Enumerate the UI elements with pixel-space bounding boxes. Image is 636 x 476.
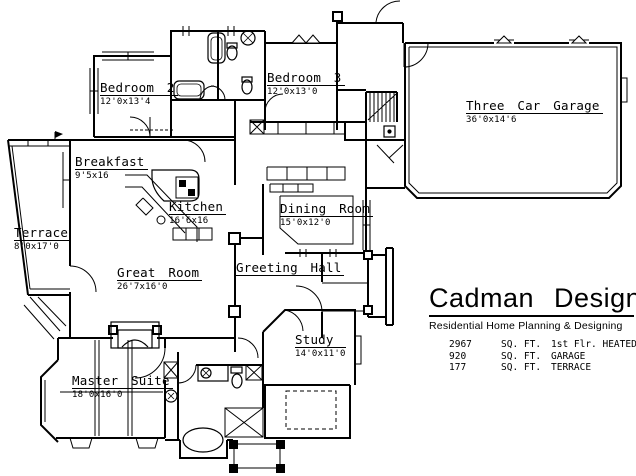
room-dims: 12'0x13'0 xyxy=(267,88,345,97)
room-name: Study xyxy=(295,333,346,348)
area-row: 177 SQ. FT. TERRACE xyxy=(449,362,634,374)
room-label-kitchen: Kitchen 16'6x16 xyxy=(169,200,226,227)
room-dims: 9'5x16 xyxy=(75,172,148,181)
room-label-terrace: Terrace 8'0x17'0 xyxy=(14,226,71,253)
brand-block: Cadman Designs Residential Home Planning… xyxy=(429,283,634,374)
room-label-bedroom-2: Bedroom 2 12'0x13'4 xyxy=(100,81,178,108)
area-label: GARAGE xyxy=(551,351,634,363)
fireplace xyxy=(111,322,159,348)
porch-posts xyxy=(55,131,285,473)
room-label-great-room: Great Room 26'7x16'0 xyxy=(117,266,202,293)
room-label-bedroom-3: Bedroom 3 12'0x13'0 xyxy=(267,71,345,98)
kitchen-island xyxy=(152,170,199,201)
room-dims: 26'7x16'0 xyxy=(117,283,202,292)
area-unit: SQ. FT. xyxy=(501,351,551,363)
room-label-study: Study 14'0x11'0 xyxy=(295,333,346,360)
area-label: 1st Flr. HEATED xyxy=(551,339,636,351)
area-value: 920 xyxy=(449,351,501,363)
room-dims: 36'0x14'6 xyxy=(466,116,603,125)
room-dims: 12'0x13'4 xyxy=(100,98,178,107)
area-value: 177 xyxy=(449,362,501,374)
rear-porch-outline xyxy=(234,444,280,468)
room-dims: 14'0x11'0 xyxy=(295,350,346,359)
room-name: Kitchen xyxy=(169,200,226,215)
room-name: Great Room xyxy=(117,266,202,281)
area-value: 2967 xyxy=(449,339,501,351)
room-label-dining-room: Dining Room 15'0x12'0 xyxy=(280,202,373,229)
door-swings xyxy=(70,1,428,383)
room-name: Dining Room xyxy=(280,202,373,217)
room-dims: 16'6x16 xyxy=(169,217,226,226)
room-dims: 15'0x12'0 xyxy=(280,219,373,228)
room-name: Terrace xyxy=(14,226,71,241)
room-label-greeting-hall: Greeting Hall xyxy=(236,261,344,278)
room-label-master-suite: Master Suite 18'0x16'0 xyxy=(72,374,173,401)
area-row: 920 SQ. FT. GARAGE xyxy=(449,351,634,363)
area-unit: SQ. FT. xyxy=(501,339,551,351)
room-name: Greeting Hall xyxy=(236,261,344,276)
room-name: Three Car Garage xyxy=(466,99,603,114)
room-name: Breakfast xyxy=(75,155,148,170)
area-row: 2967 SQ. FT. 1st Flr. HEATED xyxy=(449,339,634,351)
room-name: Master Suite xyxy=(72,374,173,389)
room-name: Bedroom 2 xyxy=(100,81,178,96)
room-dims: 8'0x17'0 xyxy=(14,243,71,252)
brand-name: Cadman Designs xyxy=(429,283,634,317)
plan-canvas: Bedroom 2 12'0x13'4 Bedroom 3 12'0x13'0 … xyxy=(0,0,636,476)
room-label-breakfast: Breakfast 9'5x16 xyxy=(75,155,148,182)
area-label: TERRACE xyxy=(551,362,634,374)
room-name: Bedroom 3 xyxy=(267,71,345,86)
room-dims: 18'0x16'0 xyxy=(72,391,173,400)
area-unit: SQ. FT. xyxy=(501,362,551,374)
brand-tagline: Residential Home Planning & Designing xyxy=(429,320,634,332)
area-table: 2967 SQ. FT. 1st Flr. HEATED 920 SQ. FT.… xyxy=(449,339,634,374)
room-label-three-car-garage: Three Car Garage 36'0x14'6 xyxy=(466,99,603,126)
